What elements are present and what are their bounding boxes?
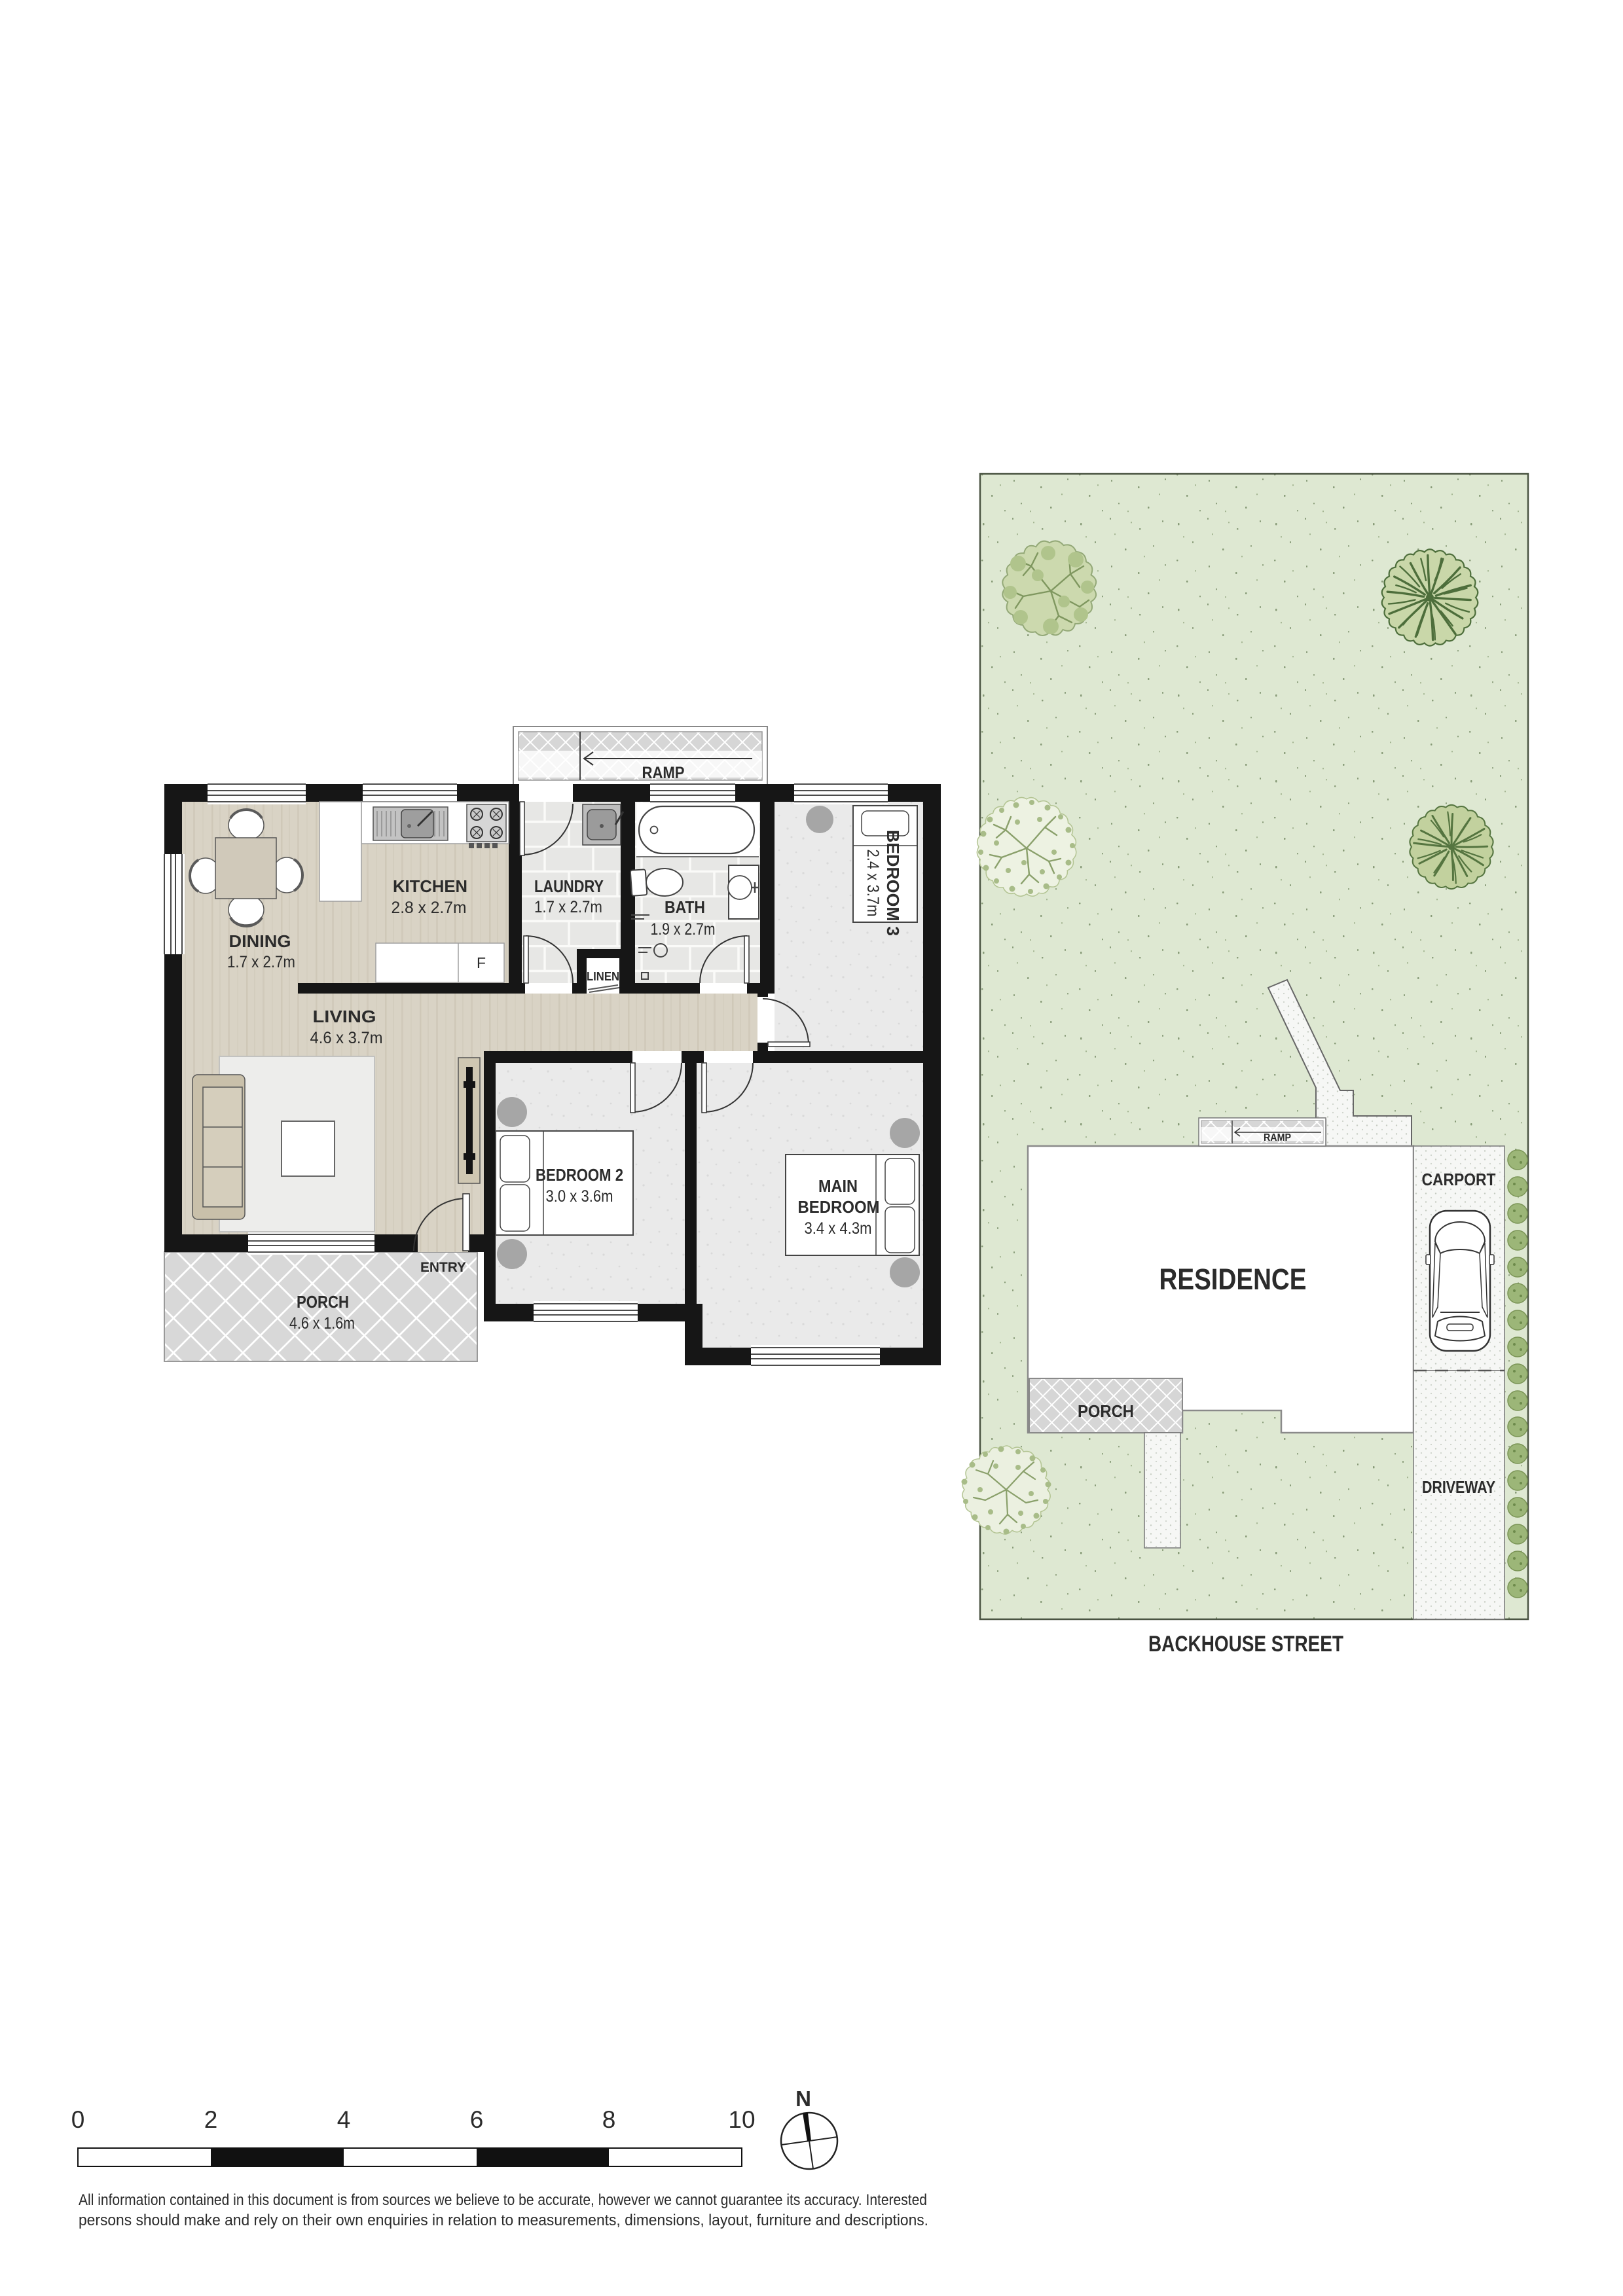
- svg-text:BATH: BATH: [665, 897, 705, 917]
- svg-text:DINING: DINING: [229, 931, 291, 951]
- svg-text:persons should make and rely o: persons should make and rely on their ow…: [79, 2212, 928, 2229]
- svg-text:RAMP: RAMP: [642, 764, 685, 782]
- svg-text:BEDROOM 3: BEDROOM 3: [883, 830, 903, 936]
- svg-text:2: 2: [204, 2106, 218, 2133]
- svg-text:2.4 x 3.7m: 2.4 x 3.7m: [864, 850, 882, 917]
- svg-text:6: 6: [470, 2106, 484, 2133]
- svg-text:4.6 x 3.7m: 4.6 x 3.7m: [310, 1029, 383, 1047]
- svg-text:1.9 x 2.7m: 1.9 x 2.7m: [651, 920, 716, 939]
- svg-text:1.7 x 2.7m: 1.7 x 2.7m: [227, 953, 295, 971]
- svg-text:All information contained in t: All information contained in this docume…: [79, 2191, 927, 2209]
- svg-text:RESIDENCE: RESIDENCE: [1159, 1263, 1307, 1296]
- svg-text:KITCHEN: KITCHEN: [393, 876, 467, 896]
- svg-text:BACKHOUSE STREET: BACKHOUSE STREET: [1148, 1632, 1343, 1657]
- svg-text:N: N: [795, 2087, 811, 2111]
- svg-text:8: 8: [602, 2106, 616, 2133]
- svg-text:LAUNDRY: LAUNDRY: [534, 876, 604, 896]
- svg-text:MAIN: MAIN: [818, 1176, 858, 1196]
- svg-text:2.8 x 2.7m: 2.8 x 2.7m: [392, 899, 467, 917]
- svg-text:PORCH: PORCH: [1078, 1401, 1134, 1421]
- svg-text:3.0 x 3.6m: 3.0 x 3.6m: [546, 1187, 613, 1206]
- svg-text:PORCH: PORCH: [297, 1292, 349, 1312]
- svg-text:4: 4: [337, 2106, 351, 2133]
- svg-text:LIVING: LIVING: [313, 1007, 376, 1026]
- svg-text:1.7 x 2.7m: 1.7 x 2.7m: [534, 898, 602, 916]
- svg-text:RAMP: RAMP: [1264, 1132, 1291, 1143]
- svg-text:3.4 x 4.3m: 3.4 x 4.3m: [805, 1219, 872, 1238]
- svg-text:BEDROOM: BEDROOM: [798, 1197, 880, 1217]
- svg-text:4.6 x 1.6m: 4.6 x 1.6m: [289, 1314, 355, 1333]
- svg-text:0: 0: [71, 2106, 85, 2133]
- svg-text:F: F: [477, 954, 486, 971]
- svg-text:ENTRY: ENTRY: [420, 1260, 466, 1275]
- svg-text:10: 10: [728, 2106, 755, 2133]
- svg-text:CARPORT: CARPORT: [1422, 1170, 1496, 1189]
- svg-text:LINEN: LINEN: [587, 970, 619, 983]
- svg-text:DRIVEWAY: DRIVEWAY: [1422, 1477, 1495, 1497]
- svg-text:BEDROOM 2: BEDROOM 2: [536, 1165, 623, 1185]
